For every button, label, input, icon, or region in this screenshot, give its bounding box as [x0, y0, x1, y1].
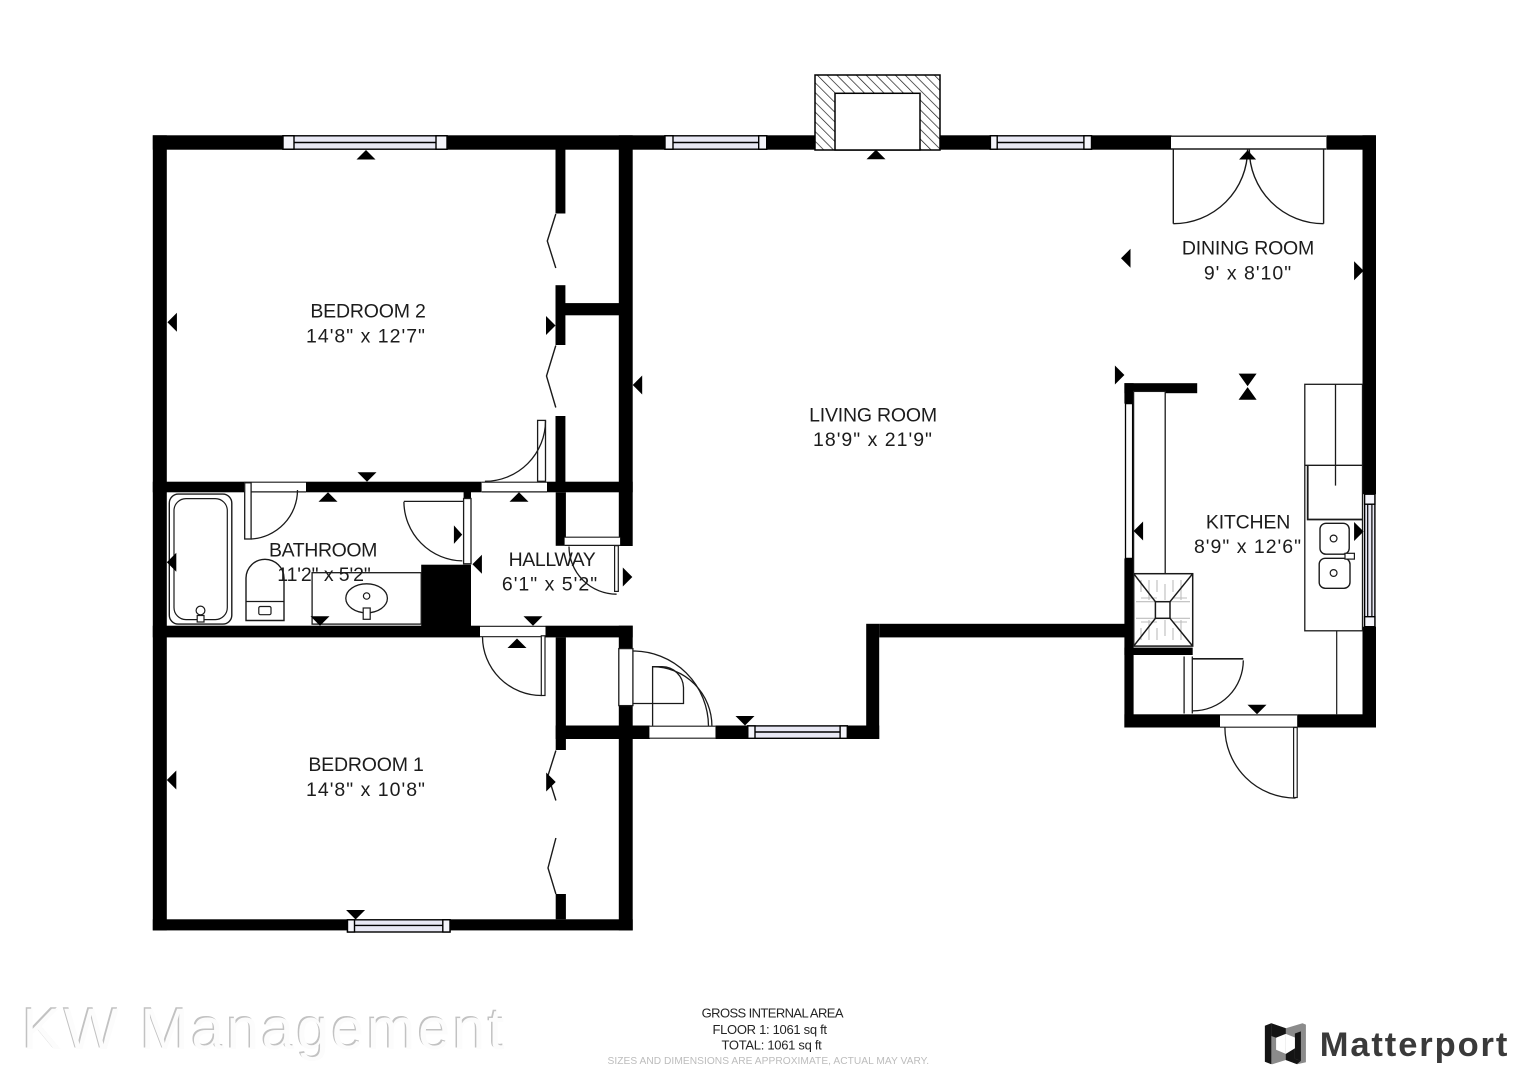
svg-text:DINING ROOM: DINING ROOM [1182, 238, 1314, 260]
svg-text:8'9" x 12'6": 8'9" x 12'6" [1194, 536, 1302, 558]
svg-text:KITCHEN: KITCHEN [1206, 512, 1290, 534]
svg-text:BATHROOM: BATHROOM [269, 539, 377, 561]
svg-text:18'9" x 21'9": 18'9" x 21'9" [813, 429, 933, 451]
svg-text:TOTAL: 1061 sq ft: TOTAL: 1061 sq ft [722, 1038, 823, 1053]
svg-text:GROSS INTERNAL AREA: GROSS INTERNAL AREA [702, 1006, 844, 1021]
svg-text:LIVING ROOM: LIVING ROOM [809, 405, 937, 427]
svg-text:6'1" x 5'2": 6'1" x 5'2" [502, 574, 598, 596]
svg-text:KW Management: KW Management [23, 997, 507, 1062]
svg-text:BEDROOM 1: BEDROOM 1 [308, 754, 423, 776]
svg-text:BEDROOM 2: BEDROOM 2 [310, 301, 425, 323]
svg-text:Matterport: Matterport [1320, 1026, 1510, 1064]
svg-text:9' x 8'10": 9' x 8'10" [1204, 263, 1292, 285]
svg-text:11'2" x 5'2": 11'2" x 5'2" [277, 564, 371, 586]
svg-text:14'8" x 12'7": 14'8" x 12'7" [306, 326, 426, 348]
svg-text:HALLWAY: HALLWAY [509, 549, 596, 571]
svg-text:SIZES AND DIMENSIONS ARE APPRO: SIZES AND DIMENSIONS ARE APPROXIMATE, AC… [607, 1056, 929, 1067]
svg-text:14'8" x 10'8": 14'8" x 10'8" [306, 779, 426, 801]
svg-text:FLOOR 1: 1061 sq ft: FLOOR 1: 1061 sq ft [712, 1022, 827, 1037]
